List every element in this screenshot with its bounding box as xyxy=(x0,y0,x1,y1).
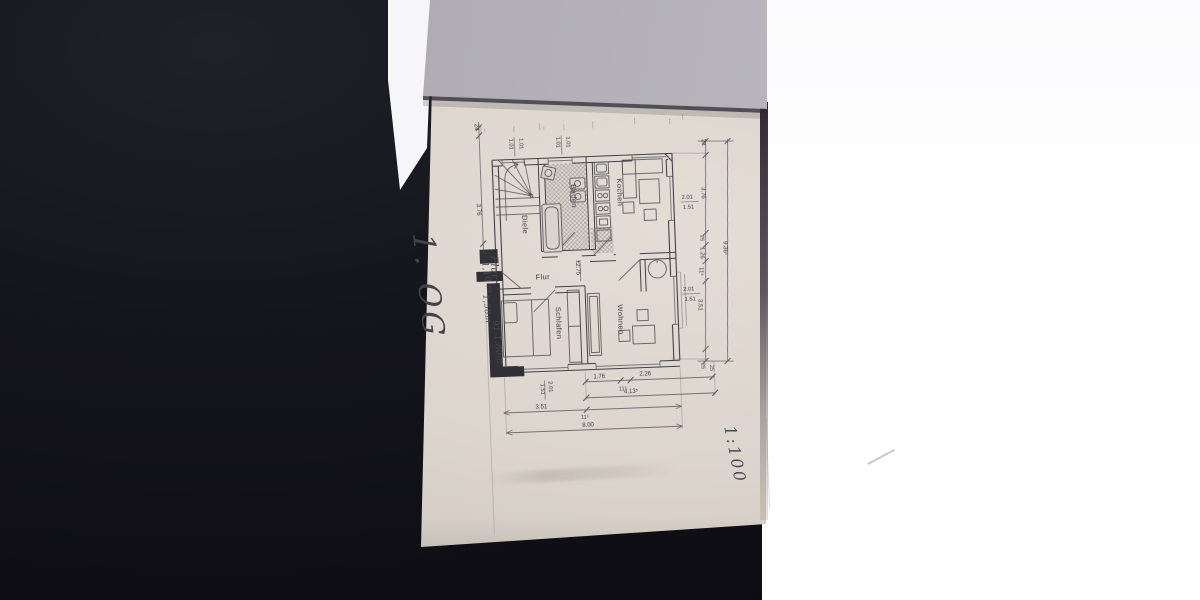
label-kochen: Kochen xyxy=(615,178,625,206)
dim-bottom-4135: 4.13⁵ xyxy=(624,388,639,396)
white-paper-sheet xyxy=(762,0,1200,600)
dim-right-25b: 25 xyxy=(700,363,706,369)
dim-left-24: 24 xyxy=(473,124,479,132)
dim-right-115: 11⁵ xyxy=(698,267,705,276)
label-schlafen: Schlafen xyxy=(554,307,564,340)
dim-right-351: 3.51 xyxy=(697,299,703,311)
win-stair-a: 1.01 xyxy=(507,138,513,150)
kitchen-dining-set xyxy=(621,159,664,222)
label-diele: Diele xyxy=(520,215,530,234)
sofa xyxy=(587,293,601,355)
dim-right-25a: 25 xyxy=(699,235,705,241)
dim-bottom-total: 8.00 xyxy=(582,423,595,429)
room-labels: Kochen Baden Diele Flur Schlafen Wohnen … xyxy=(519,178,630,340)
dim-bottom-176: 1.76 xyxy=(593,374,606,380)
win-living-b: 1.51 xyxy=(684,297,696,303)
win-bath-a: 1.01 xyxy=(554,137,560,149)
dim-right-total: 9.36⁵ xyxy=(722,241,729,256)
faint-top-ticks xyxy=(481,114,683,134)
label-baden: Baden xyxy=(569,184,579,208)
bathtub xyxy=(542,204,563,253)
label-flur: Flur xyxy=(535,272,550,282)
label-level-mark: ±2.75 xyxy=(574,260,581,276)
label-wohnen: Wohnen xyxy=(616,304,626,335)
dim-right-376: 3.76 xyxy=(700,187,706,199)
dim-bottom-226: 2.26 xyxy=(639,371,652,377)
bed xyxy=(501,299,550,357)
win-bedroom-a: 2.01 xyxy=(547,381,553,393)
dim-chain-left: 24 3.76 xyxy=(472,122,487,254)
dim-bottom-25: 25 xyxy=(708,365,714,371)
staircase xyxy=(494,158,540,221)
win-stair-b: 1.01 xyxy=(517,138,523,150)
win-bath-b: 1.01 xyxy=(564,136,570,148)
toilet xyxy=(541,166,556,180)
win-bedroom-b: 1.51 xyxy=(539,383,545,395)
dim-right-24: 24 xyxy=(700,139,706,146)
wardrobe xyxy=(567,290,582,362)
dim-bottom-115b: 11⁵ xyxy=(581,415,589,421)
dim-bottom-351: 3.51 xyxy=(535,404,548,410)
dim-chain-right: 24 3.76 25 1.26 11⁵ 3.51 25 9.36⁵ xyxy=(672,138,734,369)
photo-of-floor-plan: Kochen Baden Diele Flur Schlafen Wohnen … xyxy=(0,0,1200,600)
win-living-a: 2.01 xyxy=(683,287,695,293)
win-kitchen-a: 2.01 xyxy=(682,195,694,201)
dim-left-376: 3.76 xyxy=(475,204,481,217)
dim-right-126: 1.26 xyxy=(699,247,705,259)
win-kitchen-b: 1.51 xyxy=(683,205,695,211)
